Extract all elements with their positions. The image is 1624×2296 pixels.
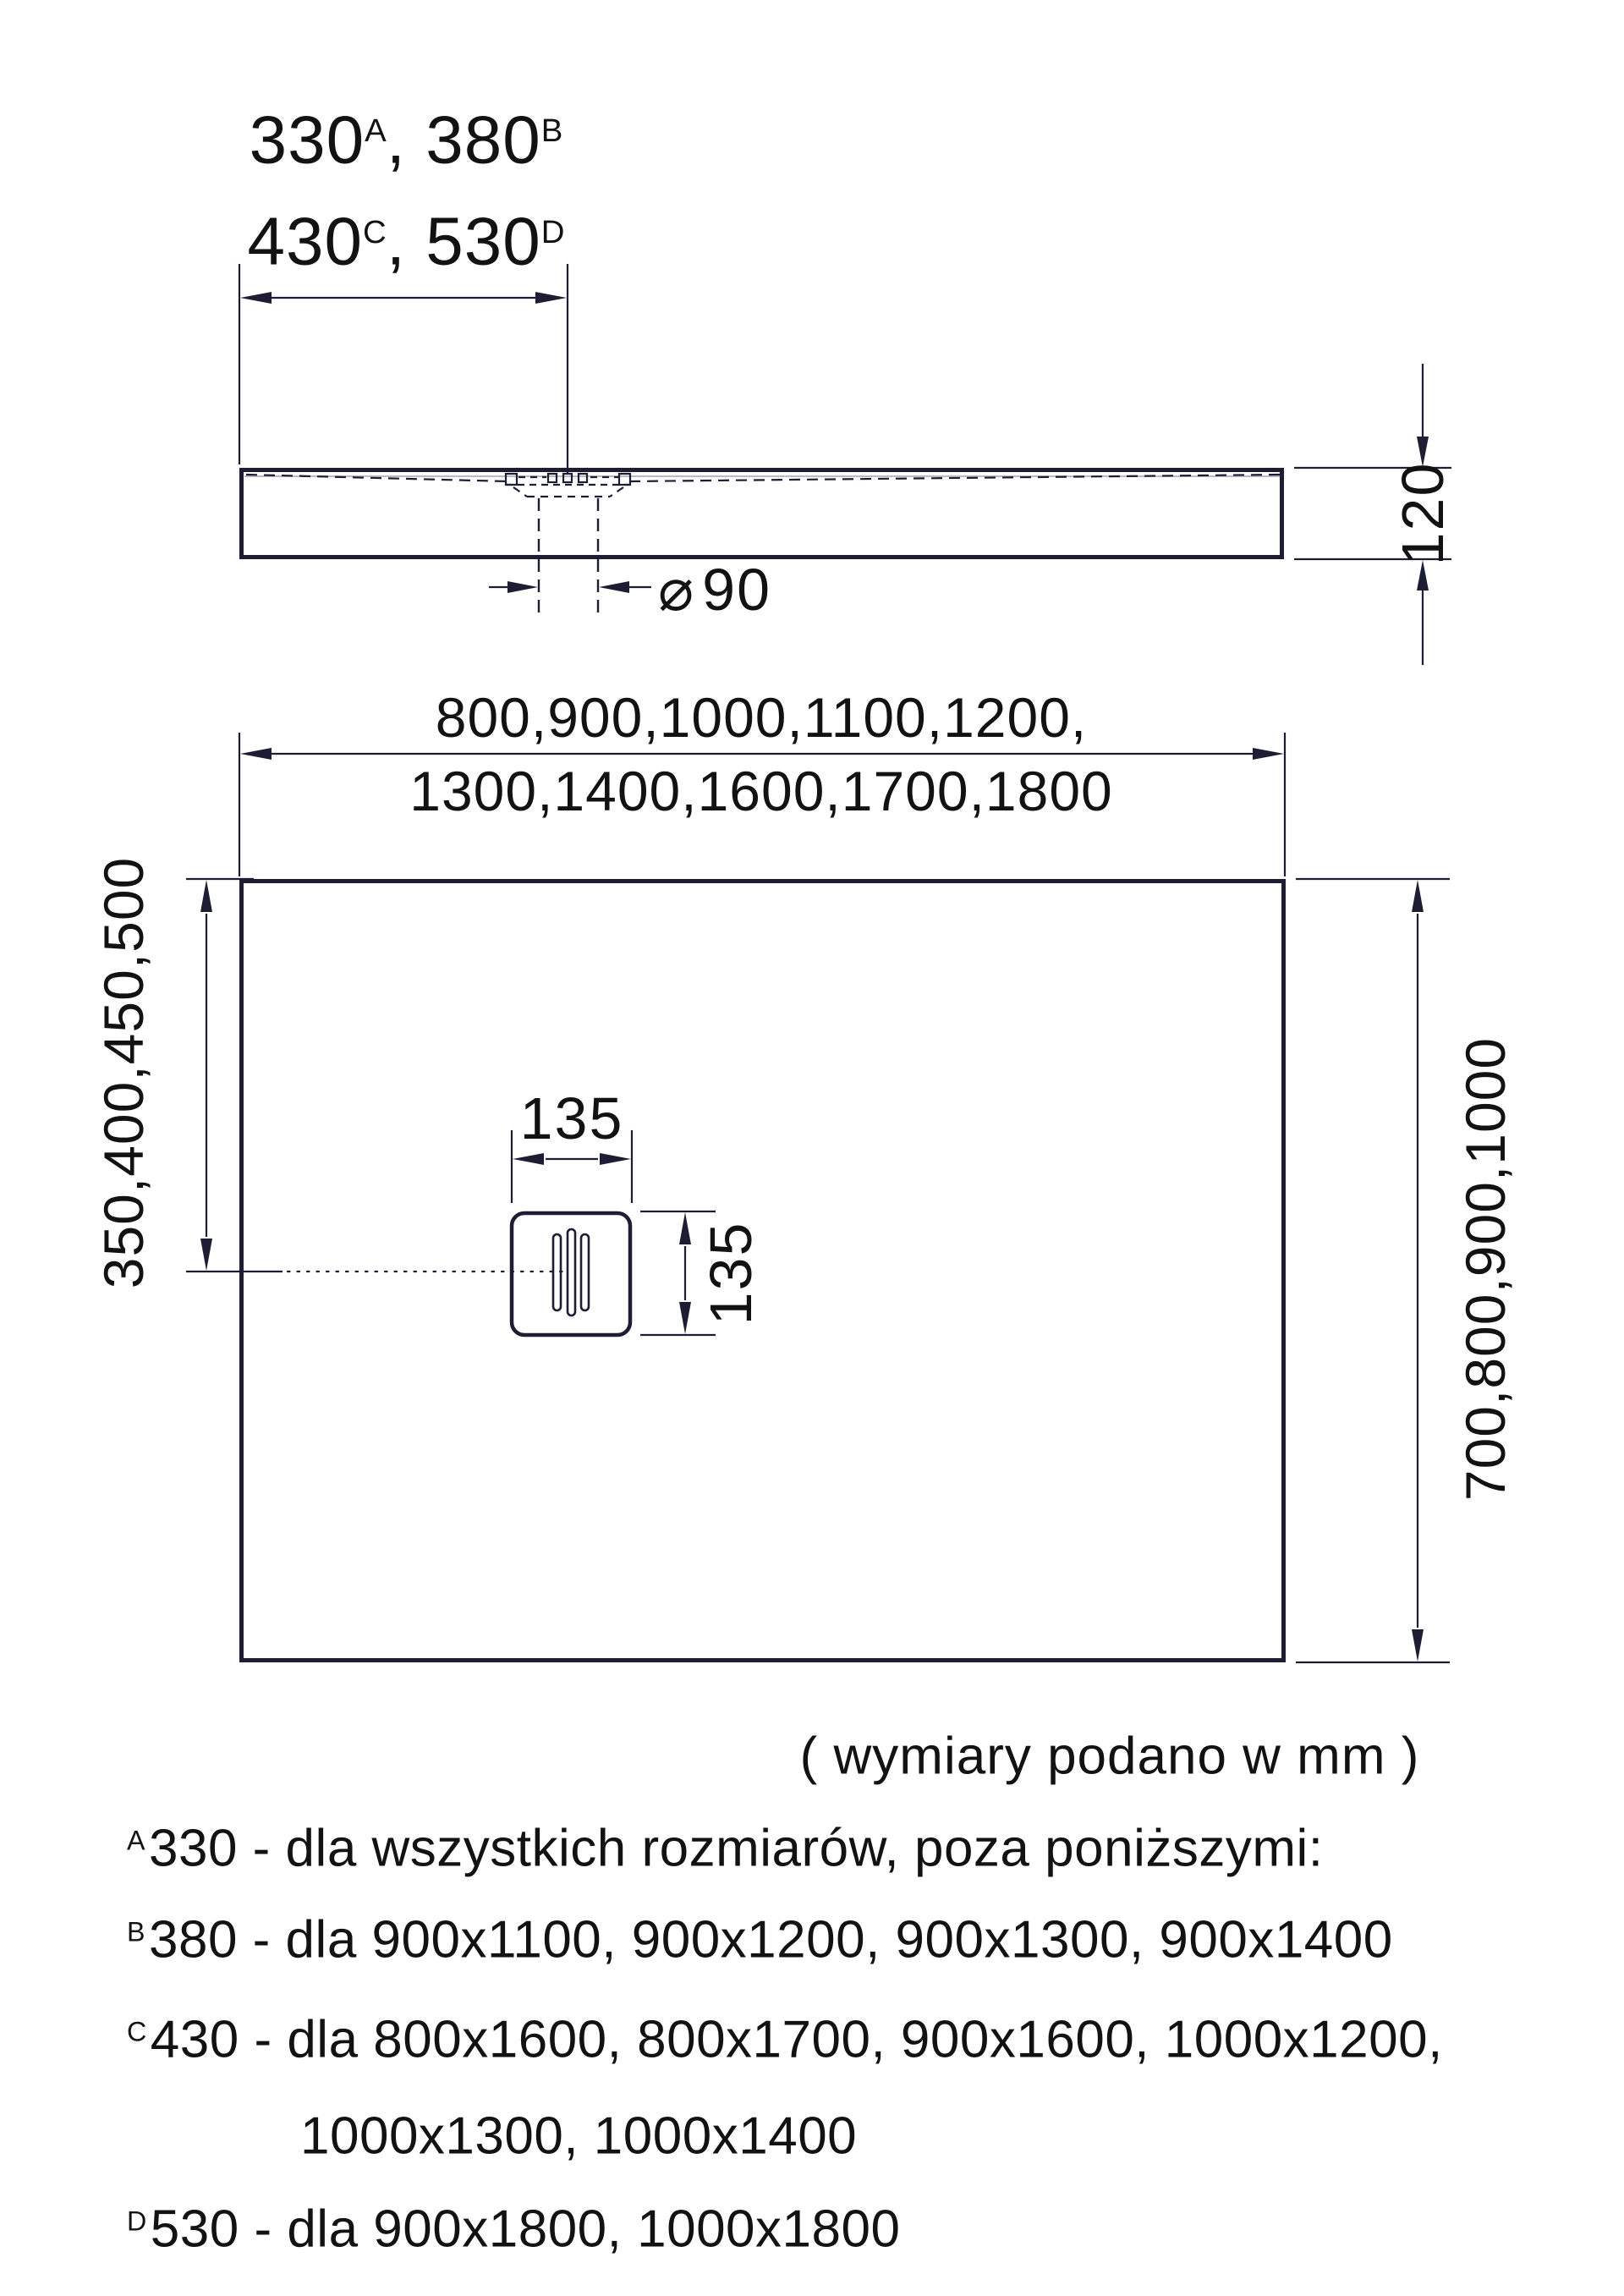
footnote-c-text: 430 - dla 800x1600, 800x1700, 900x1600, …	[151, 2011, 1443, 2069]
plan-depth-options-label: 700,800,900,1000	[1453, 1037, 1517, 1501]
footnote-b-sup: B	[127, 1916, 145, 1947]
drain-cover-plan	[512, 1213, 630, 1335]
side-drain-offset-label: 330A, 380B 430C, 530D	[248, 85, 565, 288]
offset-430: 430	[248, 204, 363, 279]
dim-side-drain-offset	[239, 264, 568, 474]
diameter-symbol: ⌀	[658, 557, 695, 623]
tray-side-outline	[242, 470, 1282, 558]
footnote-c2-text: 1000x1300, 1000x1400	[300, 2107, 857, 2166]
dim-plan-depth	[1296, 879, 1450, 1662]
footnote-b-text: 380 - dla 900x1100, 900x1200, 900x1300, …	[149, 1911, 1393, 1969]
drain-width-dim-label: 135	[520, 1085, 624, 1152]
footnote-c-sup: C	[127, 2016, 147, 2046]
offset-380: , 380	[387, 102, 541, 177]
footnote-b: B380 - dla 900x1100, 900x1200, 900x1300,…	[127, 1910, 1393, 1970]
drain-height-dim-label: 135	[697, 1222, 765, 1326]
plan-drain-offset-label: 350,400,450,500	[91, 857, 156, 1288]
diameter-value: 90	[702, 557, 771, 623]
offset-line-1: 330A, 380B	[248, 85, 565, 186]
footnote-c-continuation: 1000x1300, 1000x1400	[300, 2106, 857, 2167]
offset-330: 330	[250, 102, 365, 177]
thickness-dim-label: 120	[1389, 462, 1457, 566]
offset-430-sup: C	[363, 214, 387, 250]
units-note: ( wymiary podano w mm )	[800, 1727, 1420, 1787]
offset-380-sup: B	[541, 113, 563, 149]
footnote-c: C430 - dla 800x1600, 800x1700, 900x1600,…	[127, 2010, 1443, 2070]
offset-330-sup: A	[365, 113, 387, 149]
plan-width-options-line1: 800,900,1000,1100,1200,	[436, 685, 1088, 750]
plan-width-options-line2: 1300,1400,1600,1700,1800	[409, 759, 1112, 823]
dim-drain-diameter	[489, 581, 651, 593]
footnote-a: A330 - dla wszystkich rozmiarów, poza po…	[127, 1819, 1324, 1879]
offset-530: , 530	[387, 204, 541, 279]
footnote-a-sup: A	[127, 1825, 145, 1855]
offset-line-2: 430C, 530D	[248, 186, 565, 288]
footnote-d-text: 530 - dla 900x1800, 1000x1800	[151, 2200, 901, 2259]
shower-tray-technical-drawing: 330A, 380B 430C, 530D 120 ⌀90 800,900,10…	[0, 0, 1624, 2296]
footnote-d: D530 - dla 900x1800, 1000x1800	[127, 2200, 900, 2260]
drain-diameter-label: ⌀90	[658, 555, 771, 624]
footnote-d-sup: D	[127, 2205, 147, 2236]
offset-530-sup: D	[541, 214, 565, 250]
footnote-a-text: 330 - dla wszystkich rozmiarów, poza pon…	[149, 1820, 1323, 1878]
